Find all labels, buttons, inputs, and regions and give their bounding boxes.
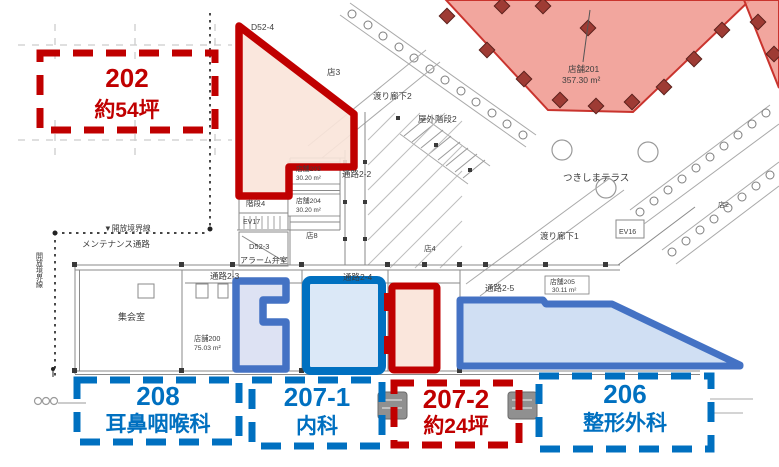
callout-208-code: 208 — [136, 381, 179, 411]
label-d52-4: D52-4 — [251, 22, 274, 32]
area-207-2-highlight — [392, 286, 437, 370]
tree-icon — [638, 142, 658, 162]
callout-206-detail: 整形外科 — [583, 411, 667, 435]
callout-208-detail: 耳鼻咽喉科 — [106, 412, 211, 436]
label-store201: 店舗201 — [568, 64, 599, 74]
label-store8: 店8 — [306, 230, 318, 240]
label-d52-3: D52-3 — [249, 242, 269, 251]
label-terrace: つきしまテラス — [563, 173, 629, 184]
floor-plan-slide: D52-4 店3 渡り廊下2 屋外階段2 店舗203 30.20 m² 通路2-… — [0, 0, 779, 467]
label-ev17: EV17 — [243, 219, 260, 226]
area-207-1-highlight — [306, 280, 382, 371]
label-stair4: 階段4 — [246, 198, 265, 208]
label-store2: 店2 — [718, 200, 729, 209]
label-store200: 店舗200 — [194, 334, 220, 343]
label-store203: 店舗203 — [296, 164, 321, 173]
label-store205: 店舗205 — [550, 277, 575, 286]
label-corridor2-3: 通路2-3 — [210, 271, 240, 281]
callout-207-1-detail: 内科 — [296, 414, 338, 438]
area-206-highlight — [460, 300, 740, 366]
label-store204: 店舗204 — [296, 196, 321, 205]
label-outdoor-stair2: 屋外階段2 — [418, 114, 457, 124]
area-208-highlight — [236, 281, 286, 369]
label-store3: 店3 — [327, 67, 341, 77]
label-walkway2: 渡り廊下2 — [373, 91, 412, 101]
label-alarm-room: アラーム弁室 — [240, 255, 288, 265]
hatch-region — [368, 113, 462, 268]
label-corridor2-4: 通路2-4 — [343, 272, 373, 282]
tree-icon — [552, 140, 572, 160]
store-201-area — [439, 0, 779, 114]
label-maintenance-corridor: メンテナンス通路 — [82, 239, 150, 249]
label-store205-area: 30.11 m² — [552, 287, 576, 294]
callout-207-2-code: 207-2 — [423, 384, 490, 414]
outdoor-stair-rungs — [404, 118, 485, 178]
colonnade-circles-3 — [668, 171, 774, 256]
store-label-boxes — [288, 162, 589, 294]
store-201-polygon — [446, 0, 750, 112]
label-corridor2-5: 通路2-5 — [485, 283, 515, 293]
label-store201-area: 357.30 m² — [562, 75, 600, 85]
label-store203-area: 30.20 m² — [296, 175, 321, 182]
callout-202-code: 202 — [105, 63, 148, 93]
store-201-corner-patch — [744, 0, 779, 88]
label-ev16: EV16 — [619, 229, 636, 236]
callout-202-detail: 約54坪 — [94, 98, 159, 122]
callout-206-code: 206 — [603, 379, 646, 409]
label-meeting-room: 集会室 — [118, 311, 145, 322]
label-open-boundary-vertical: 開放境界線 — [36, 252, 45, 288]
label-corridor2-2: 通路2-2 — [342, 169, 372, 179]
label-store200-area: 75.03 m² — [194, 345, 222, 352]
colonnade-circles-2 — [636, 109, 770, 216]
door-symbol — [51, 367, 55, 371]
callout-207-2-detail: 約24坪 — [423, 414, 488, 438]
callout-207-1-code: 207-1 — [284, 382, 351, 412]
label-store4: 店4 — [424, 243, 436, 253]
label-open-boundary: ▼開放境界線 — [104, 223, 151, 233]
floor-plan-svg: D52-4 店3 渡り廊下2 屋外階段2 店舗203 30.20 m² 通路2-… — [0, 0, 779, 467]
label-walkway1: 渡り廊下1 — [540, 231, 579, 241]
label-store204-area: 30.20 m² — [296, 207, 321, 214]
